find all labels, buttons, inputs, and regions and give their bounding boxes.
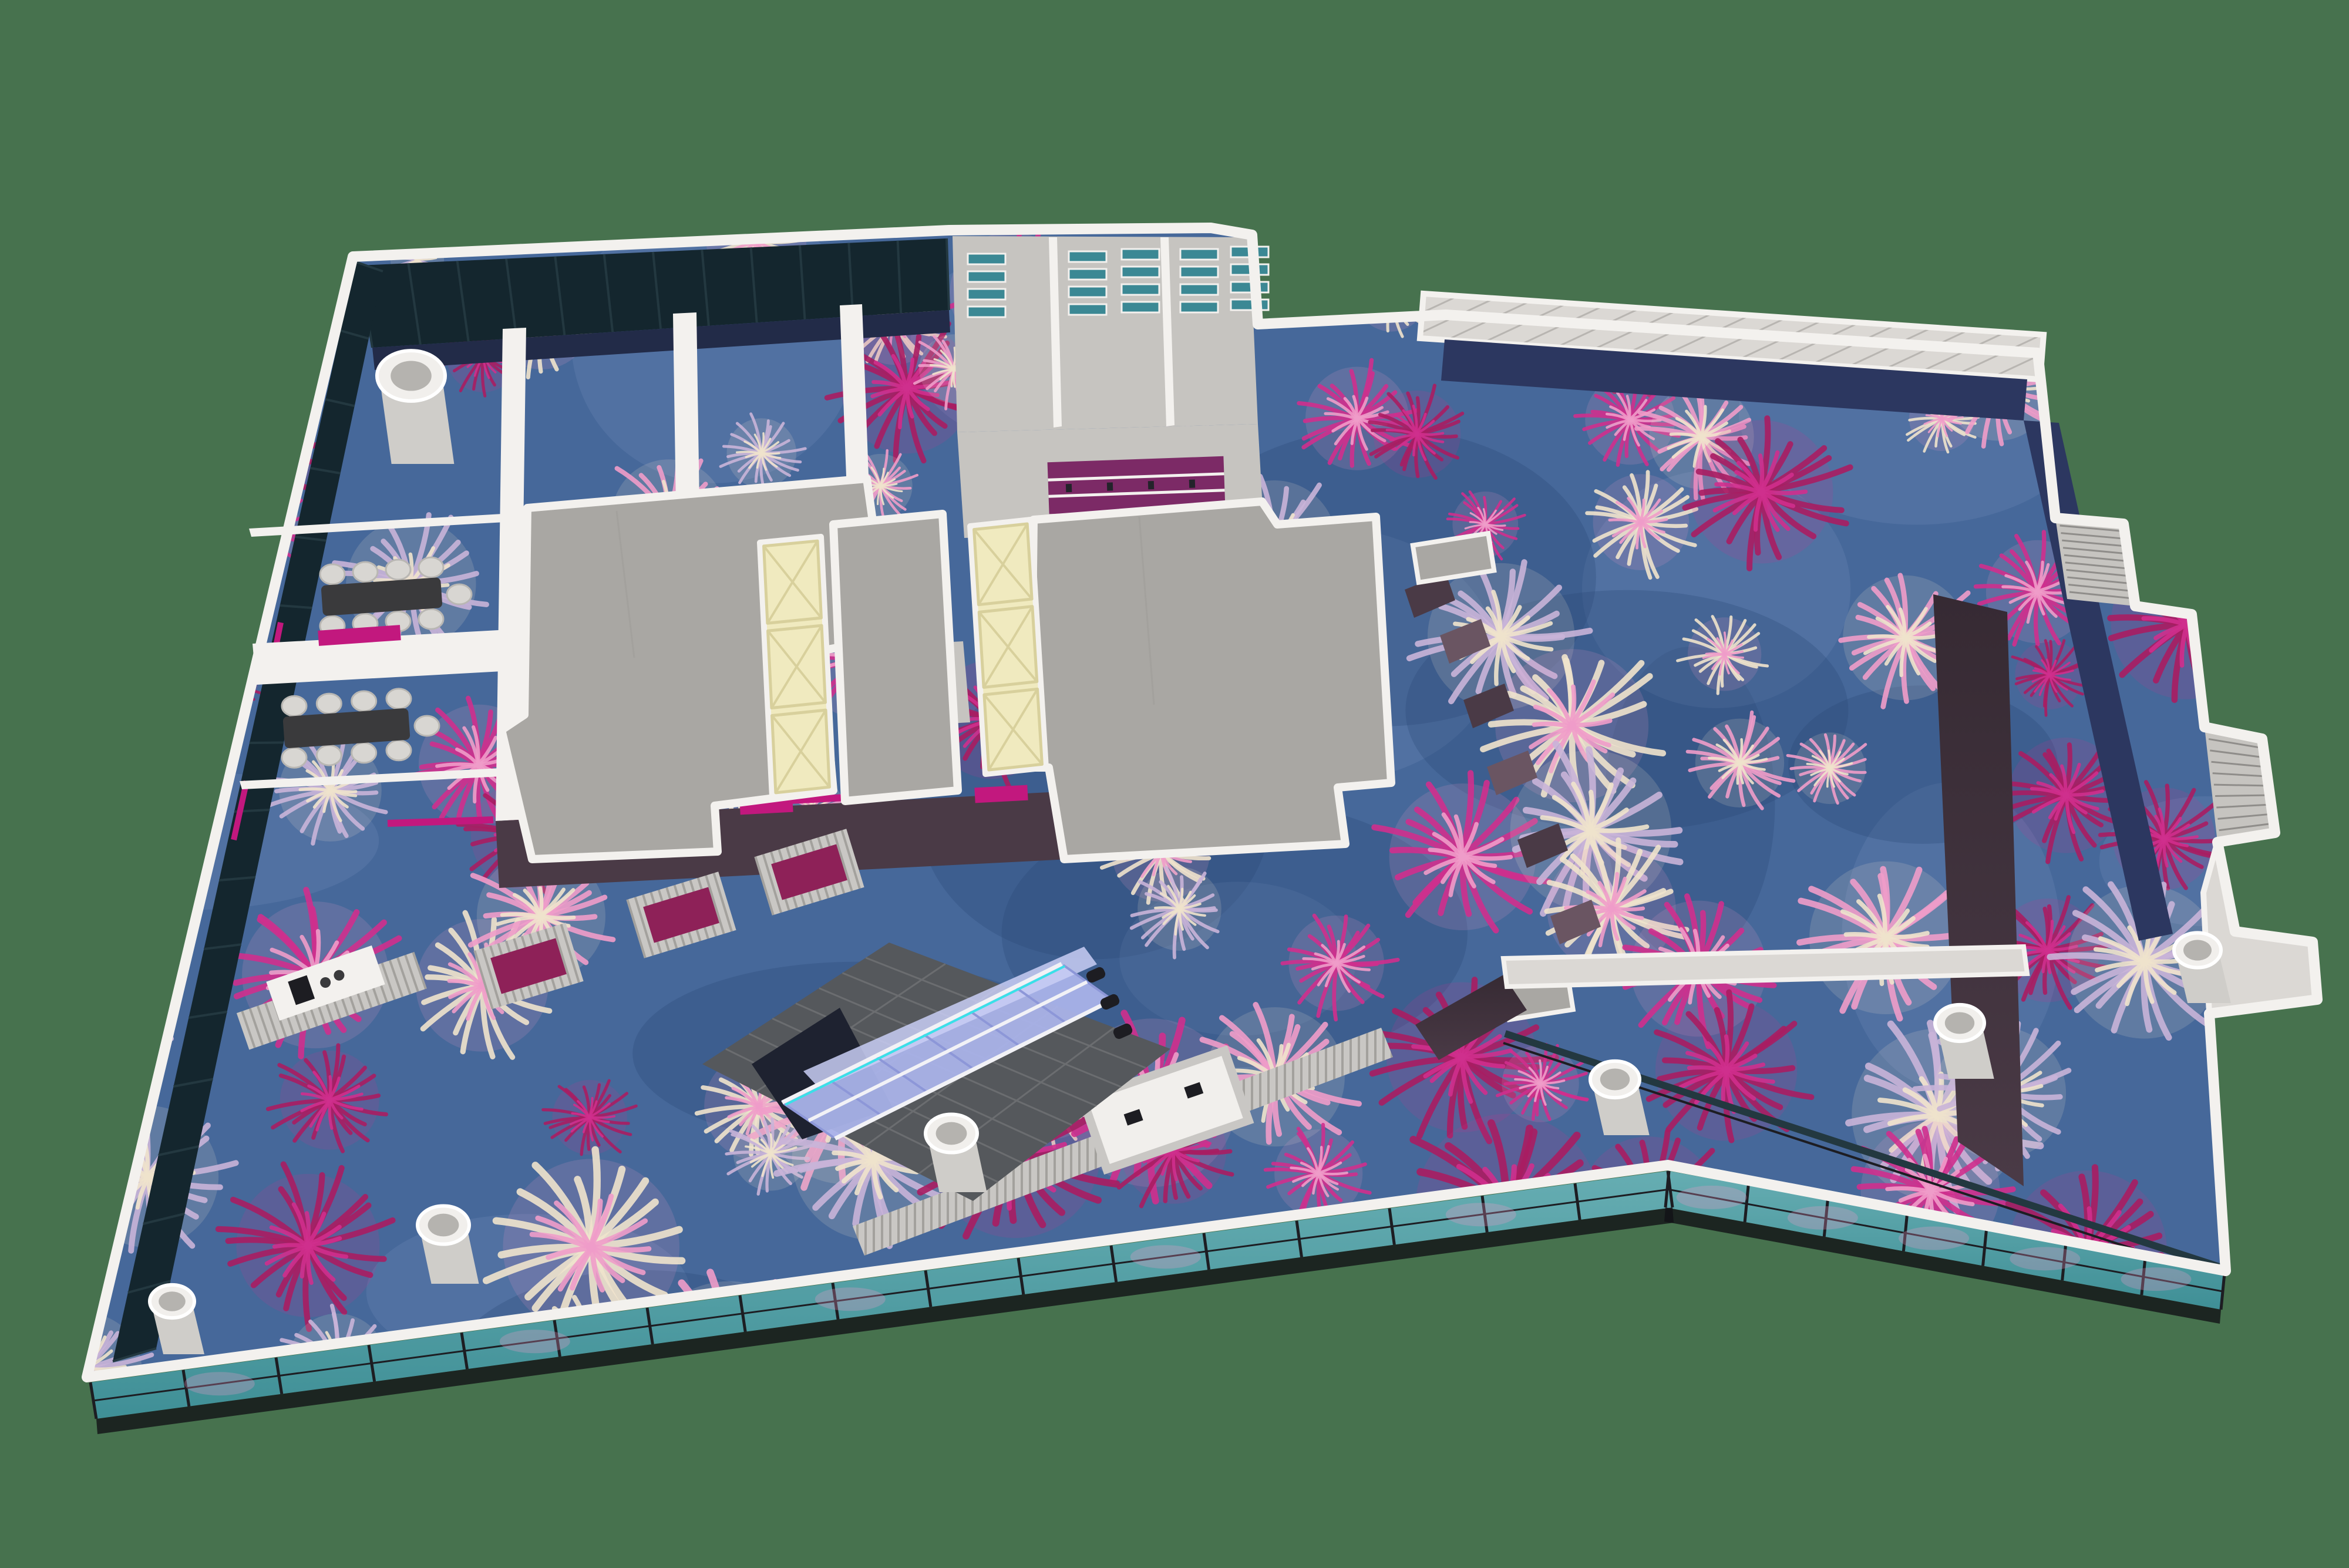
glass-reflection [1899,1227,1969,1250]
tap [1148,481,1154,489]
shelf-unit [1122,267,1159,277]
shelf-unit [1069,269,1106,280]
back-of-house [953,236,1268,538]
shelf-unit [1069,304,1106,315]
shelf-unit [1122,302,1159,312]
chair [447,584,472,604]
shelf-unit [1231,300,1268,310]
tap [1066,484,1072,492]
tap [1189,480,1195,488]
baseboard-accent [388,820,493,823]
chair [419,609,443,629]
chair [386,689,411,709]
chair [419,557,443,577]
boh-floor [953,236,1258,432]
shelf-unit [1122,249,1159,260]
glass-reflection [2010,1247,2080,1270]
shelf-unit [1069,251,1106,262]
chair [282,748,307,768]
shelf-unit [1180,302,1218,312]
floorplan-svg [0,0,2349,1568]
shelf-unit [968,289,1005,300]
chair [317,745,341,765]
tap [1107,482,1113,490]
shelf-unit [1180,249,1218,260]
core-slab-mid [833,514,958,801]
chair [352,743,376,763]
glass-reflection [1130,1245,1201,1268]
shelf-unit [1122,284,1159,295]
shelf-unit [1069,287,1106,297]
glass-reflection [1788,1206,1858,1230]
glass-reflection [184,1372,255,1395]
chair [320,564,345,584]
chair [386,741,411,761]
glass-reflection [2121,1267,2191,1291]
mullion [250,742,284,743]
chair [353,562,378,582]
glass-reflection [1677,1186,1747,1209]
chair [415,716,439,736]
chair [386,560,410,580]
chair [352,691,376,711]
shelf-unit [968,307,1005,317]
tread [2214,785,2266,786]
glass-reflection [1446,1203,1516,1226]
skylight-strip [970,520,1046,774]
core-slab-east [1031,502,1391,859]
skylight-strip [760,537,833,797]
shelf-unit [968,254,1005,264]
shelf-unit [1180,284,1218,295]
glass-reflection [500,1330,570,1353]
shelf-unit [968,271,1005,282]
pink-door [974,785,1028,803]
tread [2215,795,2267,796]
render-stage [0,0,2349,1568]
shelf-unit [1180,267,1218,277]
glass-reflection [815,1287,886,1311]
chair [317,694,341,714]
shelf-unit [1231,282,1268,292]
chair [282,696,307,716]
